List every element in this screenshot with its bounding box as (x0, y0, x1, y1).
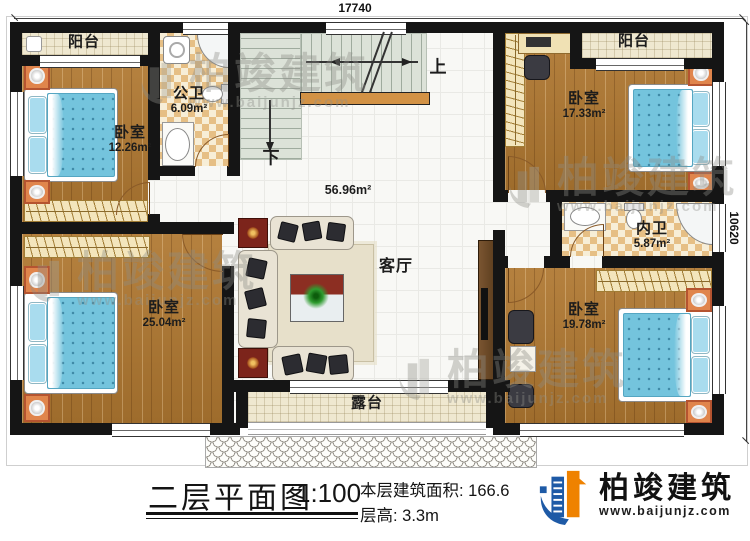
floor-height-text: 层高: 3.3m (360, 502, 439, 526)
nightstand (686, 400, 712, 424)
balcony-left-slider (40, 55, 140, 68)
balcony-right-slider (596, 58, 684, 71)
room-label-balcony-right: 阳台 (618, 34, 650, 51)
floor-plan-page: 17740 10620 (0, 0, 750, 541)
nightstand (24, 394, 50, 422)
stair-arrow-right (402, 58, 412, 66)
roof-tiles (205, 436, 537, 468)
sofa-bottom (272, 346, 354, 382)
pillow (692, 92, 709, 126)
chair (508, 384, 534, 408)
window (183, 22, 228, 35)
room-area: 6.09m² (171, 103, 207, 116)
stair-up-text: 上 (430, 57, 447, 76)
mattress (47, 93, 115, 177)
floor-area-text: 本层建筑面积: 166.6 (360, 477, 509, 501)
mattress (623, 313, 691, 397)
pillow (29, 345, 46, 383)
mattress (47, 297, 115, 389)
room-name: 客厅 (379, 258, 413, 276)
room-name: 阳台 (68, 35, 100, 52)
bed-sheet-fold (674, 314, 690, 396)
room-label-bedroom-bottom-left: 卧室 25.04m² (143, 300, 186, 330)
wall (148, 166, 195, 176)
sofa-cushion (305, 352, 327, 374)
sink (570, 207, 600, 226)
room-name: 卧室 (109, 125, 152, 142)
pillow (29, 97, 46, 133)
room-name: 露台 (351, 396, 383, 413)
wall (10, 222, 234, 234)
pillow (29, 303, 46, 341)
sofa-cushion (281, 353, 304, 376)
sofa-left (238, 250, 278, 348)
wall (544, 256, 570, 268)
side-table (238, 348, 268, 378)
balcony-seat (26, 36, 42, 52)
brand-name: 柏竣建筑 (599, 474, 735, 504)
wall (448, 380, 510, 392)
room-label-living-room: 客厅 (379, 258, 413, 276)
room-area: 5.87m² (634, 238, 670, 251)
sofa-cushion (244, 287, 267, 310)
room-label-bedroom-bottom-right: 卧室 19.78m² (563, 302, 606, 332)
bed-sheet-fold (676, 90, 692, 166)
window (326, 22, 406, 35)
wardrobe (24, 236, 150, 258)
room-label-bath-public: 公卫 6.09m² (171, 86, 207, 116)
dimension-line-right (746, 22, 747, 442)
bed (24, 292, 118, 394)
room-name: 内卫 (634, 221, 670, 238)
brand-url: www.baijunjz.com (599, 504, 735, 518)
wall (486, 392, 498, 428)
brand-logo-icon (536, 464, 594, 528)
bed-sheet-fold (48, 298, 64, 388)
bed-sheet-fold (48, 94, 64, 176)
room-area: 56.96m² (325, 183, 372, 197)
room-area: 17.33m² (563, 108, 606, 121)
stair-down-text: 下 (263, 148, 280, 167)
wall (546, 190, 724, 202)
room-label-balcony-left: 阳台 (68, 35, 100, 52)
wall (493, 256, 508, 268)
sofa-cushion (302, 221, 323, 242)
mattress (633, 89, 693, 167)
room-area: 12.26m² (109, 142, 152, 155)
wall (236, 392, 248, 428)
wall (493, 22, 505, 190)
title-underline (146, 518, 358, 519)
wall (602, 256, 724, 268)
window (10, 92, 24, 176)
window (112, 423, 210, 437)
wall (148, 22, 160, 180)
sofa-cushion (277, 221, 299, 243)
nightstand (686, 288, 712, 312)
plant (303, 283, 329, 309)
sofa-top (270, 216, 354, 250)
stair-flight-down (240, 33, 302, 160)
pillow (692, 317, 709, 353)
stair-up-label: 上 (430, 57, 447, 76)
bed (618, 308, 714, 402)
sink (165, 128, 190, 161)
stair-down-line (269, 100, 271, 144)
room-label-bath-ensuite: 内卫 5.87m² (634, 221, 670, 251)
plan-title: 二层平面图 (148, 473, 313, 517)
stair-railing (300, 92, 430, 105)
stair-arrow-left (330, 58, 340, 66)
chair (524, 55, 550, 80)
small-table (510, 346, 536, 372)
washing-machine (163, 36, 190, 64)
nightstand (24, 266, 50, 294)
sofa-cushion (245, 257, 268, 280)
window (712, 82, 726, 166)
sofa-cushion (326, 222, 346, 242)
room-name: 卧室 (143, 300, 186, 317)
wall (228, 380, 290, 392)
wall (493, 190, 508, 202)
pillow (692, 357, 709, 393)
window (520, 423, 684, 437)
room-area: 19.78m² (563, 319, 606, 332)
room-name: 公卫 (171, 86, 207, 103)
dimension-width: 17740 (338, 1, 371, 15)
wall (222, 266, 234, 423)
brand-logo: 柏竣建筑 www.baijunjz.com (536, 464, 735, 528)
room-name: 卧室 (563, 91, 606, 108)
side-table (238, 218, 268, 248)
window (712, 204, 726, 252)
room-label-bedroom-top-left: 卧室 12.26m² (109, 125, 152, 155)
dimension-height: 10620 (727, 211, 741, 244)
pillow (692, 130, 709, 164)
bed (24, 88, 118, 182)
bed (628, 84, 714, 172)
room-label-terrace: 露台 (351, 396, 383, 413)
terrace-sill (248, 422, 486, 435)
sofa-cushion (328, 354, 349, 375)
room-label-bedroom-top-right: 卧室 17.33m² (563, 91, 606, 121)
room-area: 25.04m² (143, 317, 186, 330)
chair (508, 310, 534, 344)
sofa-cushion (246, 318, 267, 339)
dimension-line-top (14, 18, 744, 19)
plan-scale: 1:100 (296, 478, 361, 509)
terrace-slider (290, 380, 448, 394)
stair-down-label: 下 (263, 148, 280, 167)
nightstand (24, 180, 50, 204)
living-room-area-label: 56.96m² (325, 183, 372, 197)
wall (228, 22, 240, 176)
title-underline (146, 512, 358, 515)
window (712, 306, 726, 394)
room-name: 阳台 (618, 34, 650, 51)
wall (227, 166, 240, 176)
window (10, 286, 24, 380)
tv (481, 288, 488, 340)
pillow (29, 137, 46, 173)
room-name: 卧室 (563, 302, 606, 319)
